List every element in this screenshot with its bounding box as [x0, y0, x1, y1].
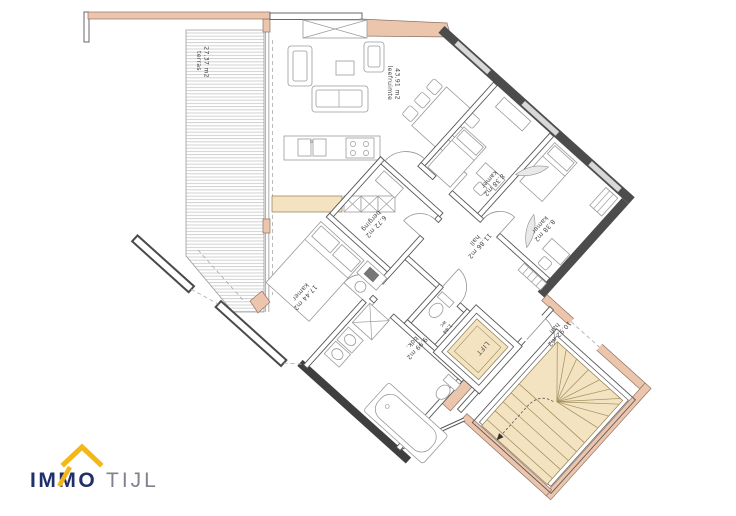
top-wall-new [88, 12, 270, 19]
sofa-icon [312, 86, 368, 112]
room-label-berging: berging 6.72 m2 [358, 209, 387, 239]
window [455, 41, 491, 74]
logo-word-tijl: TIJL [106, 469, 159, 492]
logo: IMMO TIJL [30, 447, 159, 492]
wall-stub [132, 235, 194, 292]
room-label-badkamer: bdk. 9.99 m2 [399, 331, 428, 361]
armchair-icon [364, 42, 384, 72]
logo-roof-icon [64, 447, 100, 464]
floorplan-page: terras 27.37 m2 [0, 0, 736, 516]
chair-icon [538, 256, 553, 271]
floorplan: terras 27.37 m2 [0, 0, 736, 516]
wardrobe-icon [378, 196, 395, 212]
terrace: terras 27.37 m2 [186, 19, 273, 313]
top-wall-existing [270, 13, 362, 20]
armchair-icon [288, 46, 312, 86]
top-wall-new-2 [360, 19, 451, 37]
coffee-table-icon [336, 61, 354, 75]
wardrobe-icon [361, 196, 378, 212]
kitchen-island-icon [284, 136, 380, 160]
bathtub-icon [363, 382, 448, 464]
closet-icon [272, 196, 342, 212]
room-label-leefruimte: leefruimte 43.91 m2 [386, 66, 400, 103]
window [588, 161, 621, 192]
sideboard-icon [303, 20, 367, 38]
room-label-hall1: hall 11.86 m2 [461, 227, 493, 260]
bedroom-2: kamer 8.38 m2 [479, 135, 619, 276]
